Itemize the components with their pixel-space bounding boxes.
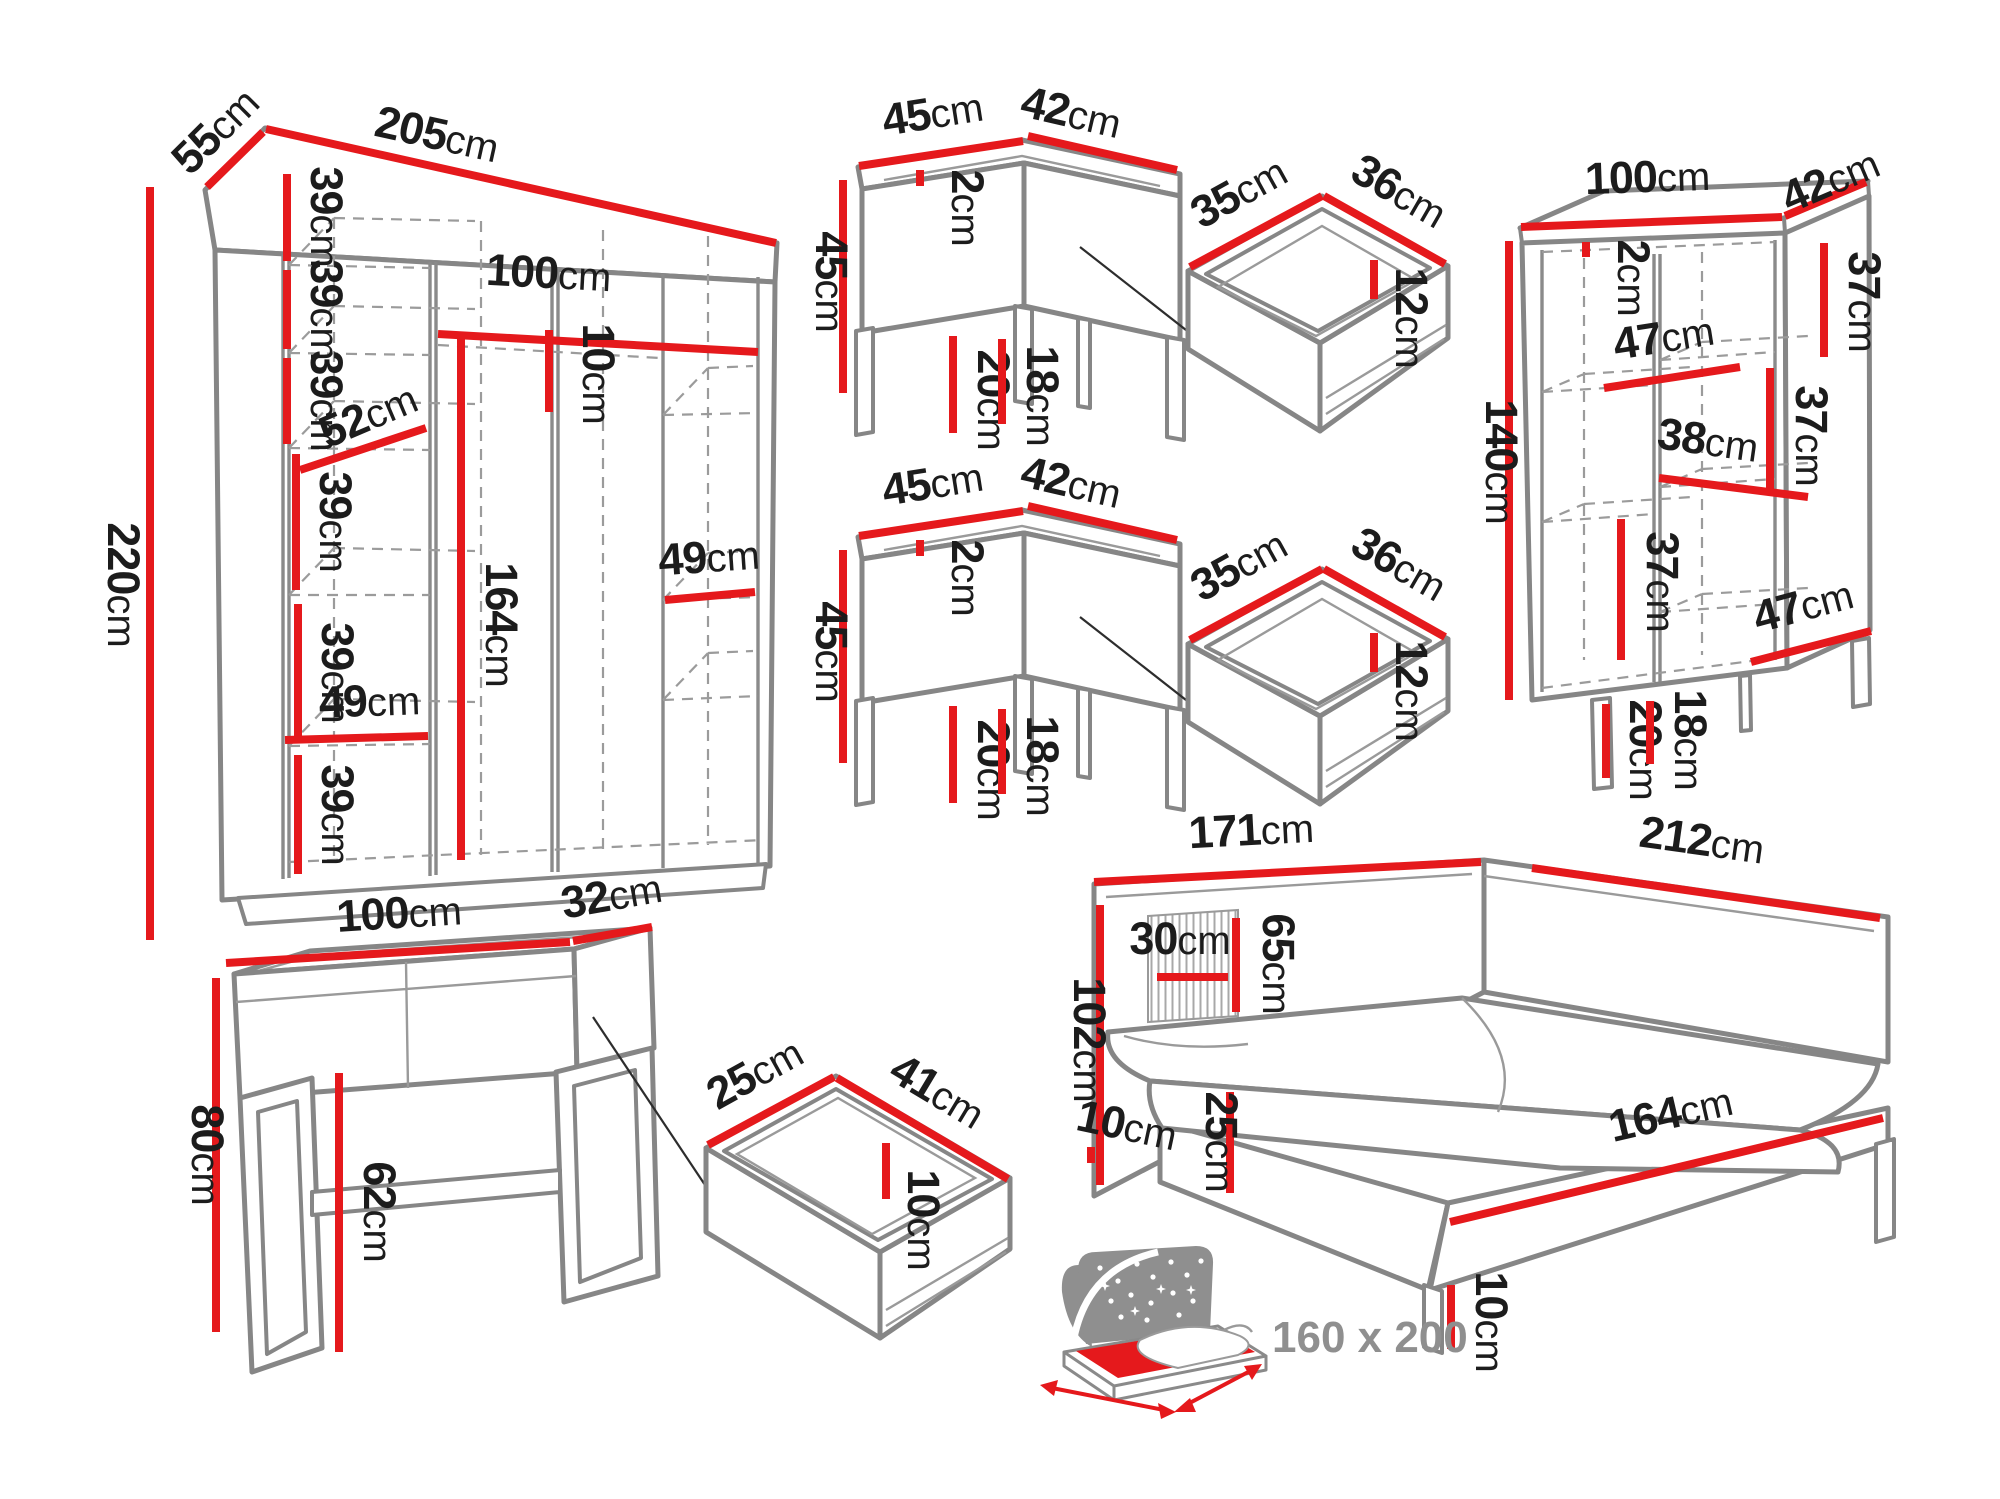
dim-label: 65cm xyxy=(1253,913,1304,1014)
dim-cabinet-leg: 20cm xyxy=(1606,699,1671,800)
dim-wardrobe-height: 220cm xyxy=(98,187,150,940)
dim-console-height: 80cm xyxy=(182,978,233,1332)
dim-label: 37cm xyxy=(1786,385,1837,486)
dim-label: 102cm xyxy=(1064,977,1115,1102)
dim-label: 20cm xyxy=(968,719,1019,820)
dim-nightstand-top-leg: 20cm xyxy=(953,336,1019,451)
dim-label: 45cm xyxy=(806,601,857,702)
nightstand-bottom-right-face xyxy=(1024,533,1180,710)
dim-label: 20cm xyxy=(1620,699,1671,800)
dim-label: 18cm xyxy=(1665,689,1716,790)
dim-label: 2cm xyxy=(942,169,993,246)
dim-label: 2cm xyxy=(1608,239,1659,316)
console-left-leg-inner xyxy=(258,1101,306,1354)
dim-label: 30cm xyxy=(1129,913,1230,964)
dim-label: 212cm xyxy=(1637,806,1768,874)
furniture-dimensions-diagram: 55cm 205cm 220cm 39cm 39cm 39cm 39cm 39c… xyxy=(0,0,2000,1499)
dim-label: 18cm xyxy=(1017,715,1068,816)
cabinet-drawing: 100cm 42cm 140cm 2cm 37cm 47cm 37cm 38cm… xyxy=(1476,136,1890,800)
dim-label: 10cm xyxy=(1466,1271,1517,1372)
dim-label: 100cm xyxy=(1584,149,1711,204)
console-drawing: 100cm 32cm 80cm 62cm xyxy=(182,861,705,1372)
nightstand-top-right-face xyxy=(1024,163,1180,340)
console-drawer-drawing: 25cm 41cm 10cm xyxy=(698,1026,1010,1338)
dim-label: 2cm xyxy=(942,539,993,616)
drawer-bottom-drawing: 35cm 36cm 12cm xyxy=(1182,516,1457,804)
dim-label: 12cm xyxy=(1386,267,1437,368)
dim-nightstand-bottom-height: 45cm xyxy=(806,550,857,763)
mattress-size-label: 160 x 200 xyxy=(1272,1313,1468,1362)
console-crossbar xyxy=(312,1170,560,1215)
dim-nightstand-top-height: 45cm xyxy=(806,180,857,393)
dim-label: 25cm xyxy=(1196,1091,1247,1192)
dim-label-shelf-gap-2: 39cm xyxy=(301,259,352,360)
dim-label-rod-drop: 10cm xyxy=(573,323,624,424)
nightstand-bottom-drawing: 45cm 42cm 45cm 2cm 20cm 18cm xyxy=(806,446,1186,821)
dim-label: 12cm xyxy=(1386,640,1437,741)
nightstand-top-drawing: 45cm 42cm 45cm 2cm 20cm 18cm xyxy=(806,76,1186,451)
drawer-top-drawing: 35cm 36cm 12cm xyxy=(1182,143,1457,431)
dim-label: 10cm xyxy=(898,1169,949,1270)
dim-label: 100cm xyxy=(335,883,463,942)
dim-label: 80cm xyxy=(182,1104,233,1205)
dim-label-shelf-gap-1: 39cm xyxy=(301,166,352,267)
dim-label: 37cm xyxy=(1839,251,1890,352)
dim-label: 18cm xyxy=(1017,345,1068,446)
dim-label-shelf-gap-4: 39cm xyxy=(310,471,361,572)
dim-label-shelf-width-left: 49cm xyxy=(318,673,421,728)
dim-label-hang-height: 164cm xyxy=(476,562,527,687)
console-right-leg-inner xyxy=(574,1070,641,1282)
dim-label: 62cm xyxy=(354,1161,405,1262)
dim-label-shelf-gap-6: 39cm xyxy=(312,764,363,865)
dim-nightstand-bottom-leg: 20cm xyxy=(953,706,1019,821)
dim-bed-frame-height: 25cm xyxy=(1196,1091,1247,1193)
dim-label: 45cm xyxy=(879,450,987,516)
dim-label: 45cm xyxy=(879,80,987,146)
dim-label-wardrobe-height: 220cm xyxy=(98,522,149,647)
dim-label: 45cm xyxy=(806,231,857,332)
wardrobe-drawing: 55cm 205cm 220cm 39cm 39cm 39cm 39cm 39c… xyxy=(98,76,777,940)
dim-label: 37cm xyxy=(1637,531,1688,632)
dim-label: 140cm xyxy=(1476,399,1527,524)
dim-label: 20cm xyxy=(968,349,1019,450)
dim-label: 171cm xyxy=(1187,801,1315,858)
dim-cabinet-height: 140cm xyxy=(1476,241,1527,700)
dim-label-shelf-width-right: 49cm xyxy=(657,528,762,586)
diagram-canvas: 55cm 205cm 220cm 39cm 39cm 39cm 39cm 39c… xyxy=(0,0,2000,1499)
